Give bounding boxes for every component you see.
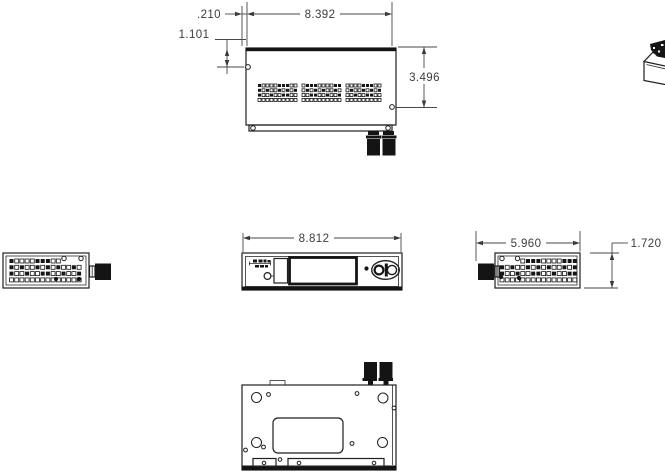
vent-cell bbox=[521, 265, 525, 269]
vent-cell bbox=[330, 98, 333, 101]
vent-cell bbox=[358, 98, 361, 101]
vent-cell bbox=[10, 278, 14, 282]
bottom-view-outline bbox=[242, 385, 396, 470]
arrowhead-icon bbox=[394, 236, 401, 240]
mounting-hole-icon bbox=[390, 105, 395, 110]
vent-cell bbox=[46, 265, 50, 269]
vent-cell bbox=[72, 272, 76, 276]
vent-cell bbox=[366, 84, 369, 87]
label-recess bbox=[273, 418, 343, 453]
keyhole-icon bbox=[264, 273, 271, 280]
top-view-bezel-strip bbox=[249, 125, 392, 131]
vent-cell bbox=[302, 98, 305, 101]
iso-top-detail bbox=[650, 40, 665, 58]
top-view-front-edge bbox=[246, 48, 396, 51]
vent-cell bbox=[378, 89, 381, 92]
vent-cell bbox=[286, 94, 289, 97]
arrowhead-icon bbox=[610, 281, 614, 288]
vent-cell bbox=[366, 89, 369, 92]
vent-cell bbox=[67, 265, 71, 269]
knob-stem bbox=[383, 131, 394, 135]
mounting-rails bbox=[253, 458, 384, 467]
connector-knob bbox=[478, 264, 494, 281]
vent-cell bbox=[370, 89, 373, 92]
vent-cell bbox=[346, 84, 349, 87]
dimension-depth: 5.960 bbox=[476, 231, 580, 261]
vent-cell bbox=[322, 89, 325, 92]
vent-cell bbox=[358, 89, 361, 92]
vent-cell bbox=[531, 278, 535, 282]
vent-cell bbox=[322, 84, 325, 87]
vent-cell bbox=[318, 89, 321, 92]
vent-cell bbox=[326, 98, 329, 101]
vent-cell bbox=[30, 265, 34, 269]
vent-cell bbox=[72, 278, 76, 282]
vent-cell bbox=[25, 259, 29, 263]
vent-cell bbox=[374, 94, 377, 97]
inlet-pin-icon bbox=[375, 266, 384, 275]
vent-cell bbox=[557, 259, 561, 263]
vent-cell bbox=[542, 265, 546, 269]
vent-cell bbox=[552, 272, 556, 276]
screw-icon bbox=[62, 256, 66, 260]
screw-hole-icon bbox=[244, 448, 248, 452]
vent-cell bbox=[322, 98, 325, 101]
screw-hole-icon bbox=[392, 406, 396, 410]
vent-cell bbox=[314, 84, 317, 87]
vent-cell bbox=[338, 89, 341, 92]
vent-cell bbox=[266, 84, 269, 87]
arrowhead-icon bbox=[243, 236, 250, 240]
vent-cell bbox=[536, 278, 540, 282]
vent-cell bbox=[505, 265, 509, 269]
knob-cap bbox=[382, 136, 397, 139]
mounting-hole-icon bbox=[246, 65, 251, 70]
left-vent-grid bbox=[10, 259, 82, 282]
vent-cell bbox=[25, 278, 29, 282]
vent-cell bbox=[15, 272, 19, 276]
vent-cell bbox=[306, 98, 309, 101]
vent-cell bbox=[338, 98, 341, 101]
vent-cell bbox=[526, 272, 530, 276]
vent-cell bbox=[294, 98, 297, 101]
vent-cell bbox=[516, 272, 520, 276]
power-button[interactable] bbox=[274, 259, 288, 284]
dimension-hole-drop: 1.101 bbox=[179, 29, 246, 74]
vent-cell bbox=[568, 278, 572, 282]
vent-cell bbox=[542, 259, 546, 263]
vent-cell bbox=[266, 98, 269, 101]
vent-cell bbox=[51, 265, 55, 269]
vent-cell bbox=[282, 94, 285, 97]
screw-hole-icon bbox=[350, 442, 354, 446]
vent-cell bbox=[562, 272, 566, 276]
dim-label: .210 bbox=[197, 9, 221, 21]
vent-cell bbox=[278, 98, 281, 101]
vent-cell bbox=[10, 259, 14, 263]
knob-cap bbox=[363, 378, 378, 381]
knob-body bbox=[380, 362, 393, 378]
vent-cell bbox=[46, 278, 50, 282]
vent-cell bbox=[557, 272, 561, 276]
vent-cell bbox=[568, 259, 572, 263]
vent-cell bbox=[370, 94, 373, 97]
vent-cell bbox=[266, 94, 269, 97]
vent-cell bbox=[500, 265, 504, 269]
vent-cell bbox=[536, 265, 540, 269]
vent-cell bbox=[270, 84, 273, 87]
vent-cell bbox=[51, 259, 55, 263]
vent-cell bbox=[510, 278, 514, 282]
vent-cell bbox=[542, 278, 546, 282]
led-indicator-icon bbox=[364, 266, 368, 270]
vent-cell bbox=[516, 265, 520, 269]
vent-cell bbox=[366, 94, 369, 97]
foot-icon bbox=[252, 438, 262, 448]
rear-tab bbox=[270, 381, 285, 386]
vent-cell bbox=[536, 272, 540, 276]
vent-cell bbox=[15, 265, 19, 269]
vent-cell bbox=[547, 272, 551, 276]
drawing-sheet: .210 8.392 1.101 3.496 bbox=[0, 0, 665, 473]
vent-cell bbox=[354, 89, 357, 92]
vent-cell bbox=[262, 98, 265, 101]
vent-cell bbox=[266, 89, 269, 92]
foot-icon bbox=[378, 438, 388, 448]
vent-cell bbox=[358, 94, 361, 97]
iso-highlight bbox=[658, 51, 660, 53]
vent-cell bbox=[547, 259, 551, 263]
binding-post-knobs bbox=[366, 131, 397, 156]
vent-cell bbox=[286, 98, 289, 101]
vent-cell bbox=[15, 278, 19, 282]
vent-cell bbox=[330, 94, 333, 97]
vent-cell bbox=[77, 265, 81, 269]
vent-cell bbox=[15, 259, 19, 263]
vent-cell bbox=[526, 259, 530, 263]
dim-label: 1.720 bbox=[631, 238, 662, 250]
vent-cell bbox=[270, 94, 273, 97]
vent-cell bbox=[262, 84, 265, 87]
screw-icon bbox=[77, 277, 81, 281]
screw-hole-icon bbox=[262, 461, 266, 465]
vent-cell bbox=[258, 98, 261, 101]
vent-cell bbox=[318, 84, 321, 87]
iso-highlight bbox=[661, 44, 664, 46]
dimension-side-height: 1.720 bbox=[584, 238, 661, 288]
multiview-drawing: .210 8.392 1.101 3.496 bbox=[0, 0, 665, 473]
vent-cell bbox=[552, 259, 556, 263]
vent-cell bbox=[310, 94, 313, 97]
vent-cell bbox=[326, 84, 329, 87]
vent-cell bbox=[330, 84, 333, 87]
vent-cell bbox=[67, 278, 71, 282]
vent-cell bbox=[568, 265, 572, 269]
vent-cell bbox=[310, 84, 313, 87]
arrowhead-icon bbox=[573, 241, 580, 245]
arrowhead-icon bbox=[422, 47, 426, 54]
vent-cell bbox=[362, 98, 365, 101]
vent-cell bbox=[358, 84, 361, 87]
vent-cell bbox=[334, 84, 337, 87]
vent-cell bbox=[322, 94, 325, 97]
vent-cell bbox=[354, 98, 357, 101]
vent-cell bbox=[314, 89, 317, 92]
left-side-view bbox=[3, 253, 111, 288]
vent-cell bbox=[547, 265, 551, 269]
knob-cap bbox=[366, 136, 381, 139]
screw-icon bbox=[517, 276, 521, 280]
display-window bbox=[290, 258, 357, 285]
vent-cell bbox=[36, 278, 40, 282]
vent-cell bbox=[282, 98, 285, 101]
vent-cell bbox=[354, 94, 357, 97]
foot-icon bbox=[378, 393, 388, 403]
dim-label: 8.392 bbox=[305, 9, 336, 21]
vent-cell bbox=[46, 272, 50, 276]
vent-cell bbox=[77, 272, 81, 276]
vent-cell bbox=[350, 98, 353, 101]
rf-connector bbox=[478, 264, 500, 281]
dimension-front-width: 8.812 bbox=[243, 233, 401, 252]
vent-cell bbox=[338, 84, 341, 87]
foot-icon bbox=[252, 393, 262, 403]
vent-cell bbox=[326, 94, 329, 97]
vent-cell bbox=[72, 265, 76, 269]
vent-cell bbox=[41, 272, 45, 276]
vent-cell bbox=[41, 278, 45, 282]
screw-hole-icon bbox=[372, 461, 376, 465]
vent-cell bbox=[378, 94, 381, 97]
vent-cell bbox=[302, 94, 305, 97]
arrowhead-icon bbox=[476, 241, 483, 245]
vent-cell bbox=[62, 265, 66, 269]
vent-cell bbox=[274, 89, 277, 92]
vent-cell bbox=[294, 84, 297, 87]
vent-cell bbox=[286, 84, 289, 87]
vent-cell bbox=[56, 272, 60, 276]
vent-cell bbox=[521, 272, 525, 276]
screw-icon bbox=[54, 277, 58, 281]
rf-connector bbox=[90, 264, 112, 281]
arrowhead-icon bbox=[225, 60, 229, 67]
vent-cell bbox=[310, 98, 313, 101]
vent-cell bbox=[290, 84, 293, 87]
vent-cell bbox=[510, 272, 514, 276]
vent-cell bbox=[278, 84, 281, 87]
vent-cell bbox=[505, 272, 509, 276]
vent-cell bbox=[378, 98, 381, 101]
right-vent-grid bbox=[500, 259, 577, 282]
vent-cell bbox=[62, 272, 66, 276]
vent-cell bbox=[278, 89, 281, 92]
vent-cell bbox=[552, 278, 556, 282]
vent-cell bbox=[282, 84, 285, 87]
front-view: 8.812 bbox=[242, 233, 402, 291]
vent-cell bbox=[334, 89, 337, 92]
vent-cell bbox=[346, 98, 349, 101]
vent-cell bbox=[521, 259, 525, 263]
vent-cell bbox=[547, 278, 551, 282]
dim-label: 1.101 bbox=[179, 29, 210, 41]
arrowhead-icon bbox=[247, 12, 254, 16]
vent-cell bbox=[20, 272, 24, 276]
vent-cell bbox=[350, 84, 353, 87]
vent-cell bbox=[51, 272, 55, 276]
vent-cell bbox=[270, 98, 273, 101]
vent-cell bbox=[25, 265, 29, 269]
vent-cell bbox=[350, 94, 353, 97]
dim-label: 8.812 bbox=[299, 233, 330, 245]
arrowhead-icon bbox=[235, 12, 242, 16]
vent-cell bbox=[262, 94, 265, 97]
vent-cell bbox=[30, 278, 34, 282]
dimension-width: 8.392 bbox=[247, 2, 392, 46]
screw-hole-icon bbox=[262, 445, 266, 449]
knob-body bbox=[383, 139, 396, 156]
vent-cell bbox=[557, 265, 561, 269]
vent-cell bbox=[306, 94, 309, 97]
vent-cell bbox=[374, 98, 377, 101]
vent-cell bbox=[557, 278, 561, 282]
vent-cell bbox=[521, 278, 525, 282]
dimension-height: 3.496 bbox=[397, 47, 440, 108]
vent-cell bbox=[30, 272, 34, 276]
vent-cell bbox=[270, 89, 273, 92]
vent-cell bbox=[314, 94, 317, 97]
vent-cell bbox=[314, 98, 317, 101]
inlet-pin-icon bbox=[387, 265, 396, 274]
vent-cell bbox=[334, 98, 337, 101]
vent-cell bbox=[56, 259, 60, 263]
vent-cell bbox=[20, 259, 24, 263]
bottom-view bbox=[242, 362, 396, 470]
vent-cell bbox=[362, 94, 365, 97]
vent-cell bbox=[258, 89, 261, 92]
vent-cell bbox=[354, 84, 357, 87]
vent-cell bbox=[318, 98, 321, 101]
binding-post-knobs bbox=[363, 362, 394, 386]
vent-cell bbox=[290, 89, 293, 92]
vent-cell bbox=[25, 272, 29, 276]
vent-cell bbox=[262, 89, 265, 92]
front-base-edge bbox=[242, 287, 402, 291]
vent-cell bbox=[36, 272, 40, 276]
vent-cell bbox=[334, 94, 337, 97]
vent-cell bbox=[338, 94, 341, 97]
vent-cell bbox=[56, 265, 60, 269]
vent-cell bbox=[278, 94, 281, 97]
vent-cell bbox=[294, 94, 297, 97]
vent-cell bbox=[318, 94, 321, 97]
screw-icon bbox=[500, 256, 504, 260]
vent-cell bbox=[362, 84, 365, 87]
vent-cell bbox=[302, 89, 305, 92]
vent-cell bbox=[10, 272, 14, 276]
vent-cell bbox=[568, 272, 572, 276]
screw-icon bbox=[79, 256, 83, 260]
vent-cell bbox=[290, 94, 293, 97]
vent-cell bbox=[306, 89, 309, 92]
vent-cell bbox=[286, 89, 289, 92]
knob-body bbox=[367, 139, 380, 156]
top-view: .210 8.392 1.101 3.496 bbox=[179, 2, 440, 156]
vent-cell bbox=[346, 89, 349, 92]
screw-icon bbox=[386, 126, 391, 131]
vent-cell bbox=[370, 98, 373, 101]
vent-cell bbox=[374, 89, 377, 92]
vent-cell bbox=[510, 265, 514, 269]
vent-cell bbox=[294, 89, 297, 92]
vent-cell bbox=[362, 89, 365, 92]
vent-cell bbox=[258, 84, 261, 87]
vent-cell bbox=[552, 265, 556, 269]
vent-cell bbox=[531, 265, 535, 269]
vent-cell bbox=[310, 89, 313, 92]
vent-cell bbox=[41, 259, 45, 263]
vent-cell bbox=[62, 278, 66, 282]
arrowhead-icon bbox=[610, 253, 614, 260]
iso-highlight bbox=[653, 47, 655, 49]
knob-body bbox=[364, 362, 377, 378]
vent-cell bbox=[274, 98, 277, 101]
arrowhead-icon bbox=[422, 101, 426, 108]
vent-cell bbox=[562, 265, 566, 269]
screw-hole-icon bbox=[278, 458, 282, 462]
vent-cell bbox=[573, 265, 577, 269]
vent-cell bbox=[282, 89, 285, 92]
connector-knob bbox=[95, 264, 111, 281]
vent-cell bbox=[346, 94, 349, 97]
vent-cell bbox=[526, 265, 530, 269]
dim-label: 3.496 bbox=[409, 72, 440, 84]
screw-hole-icon bbox=[267, 393, 271, 397]
vent-cell bbox=[573, 259, 577, 263]
vent-cell bbox=[573, 278, 577, 282]
screw-icon bbox=[251, 126, 256, 131]
vent-cell bbox=[36, 259, 40, 263]
knob-stem bbox=[368, 131, 379, 135]
vent-cell bbox=[67, 272, 71, 276]
vent-cell bbox=[290, 98, 293, 101]
rail bbox=[288, 459, 384, 467]
vent-cell bbox=[573, 272, 577, 276]
power-inlet bbox=[372, 261, 400, 280]
vent-cell bbox=[370, 84, 373, 87]
vent-cell bbox=[374, 84, 377, 87]
vent-cell bbox=[562, 259, 566, 263]
vent-cell bbox=[274, 94, 277, 97]
vent-cell bbox=[30, 259, 34, 263]
dim-label: 5.960 bbox=[511, 238, 542, 250]
vent-cell bbox=[531, 272, 535, 276]
screw-hole-icon bbox=[297, 461, 301, 465]
knob-cap bbox=[379, 378, 394, 381]
screw-icon bbox=[515, 256, 519, 260]
vent-cell bbox=[562, 278, 566, 282]
isometric-view bbox=[644, 40, 665, 85]
vent-cell bbox=[46, 259, 50, 263]
screw-hole-icon bbox=[355, 392, 359, 396]
vent-cell bbox=[20, 265, 24, 269]
arrowhead-icon bbox=[225, 49, 229, 56]
vent-cell bbox=[536, 259, 540, 263]
vent-cell bbox=[306, 84, 309, 87]
vent-cell bbox=[531, 259, 535, 263]
vent-cell bbox=[330, 89, 333, 92]
vent-cell bbox=[302, 84, 305, 87]
right-view-outline bbox=[495, 253, 580, 288]
